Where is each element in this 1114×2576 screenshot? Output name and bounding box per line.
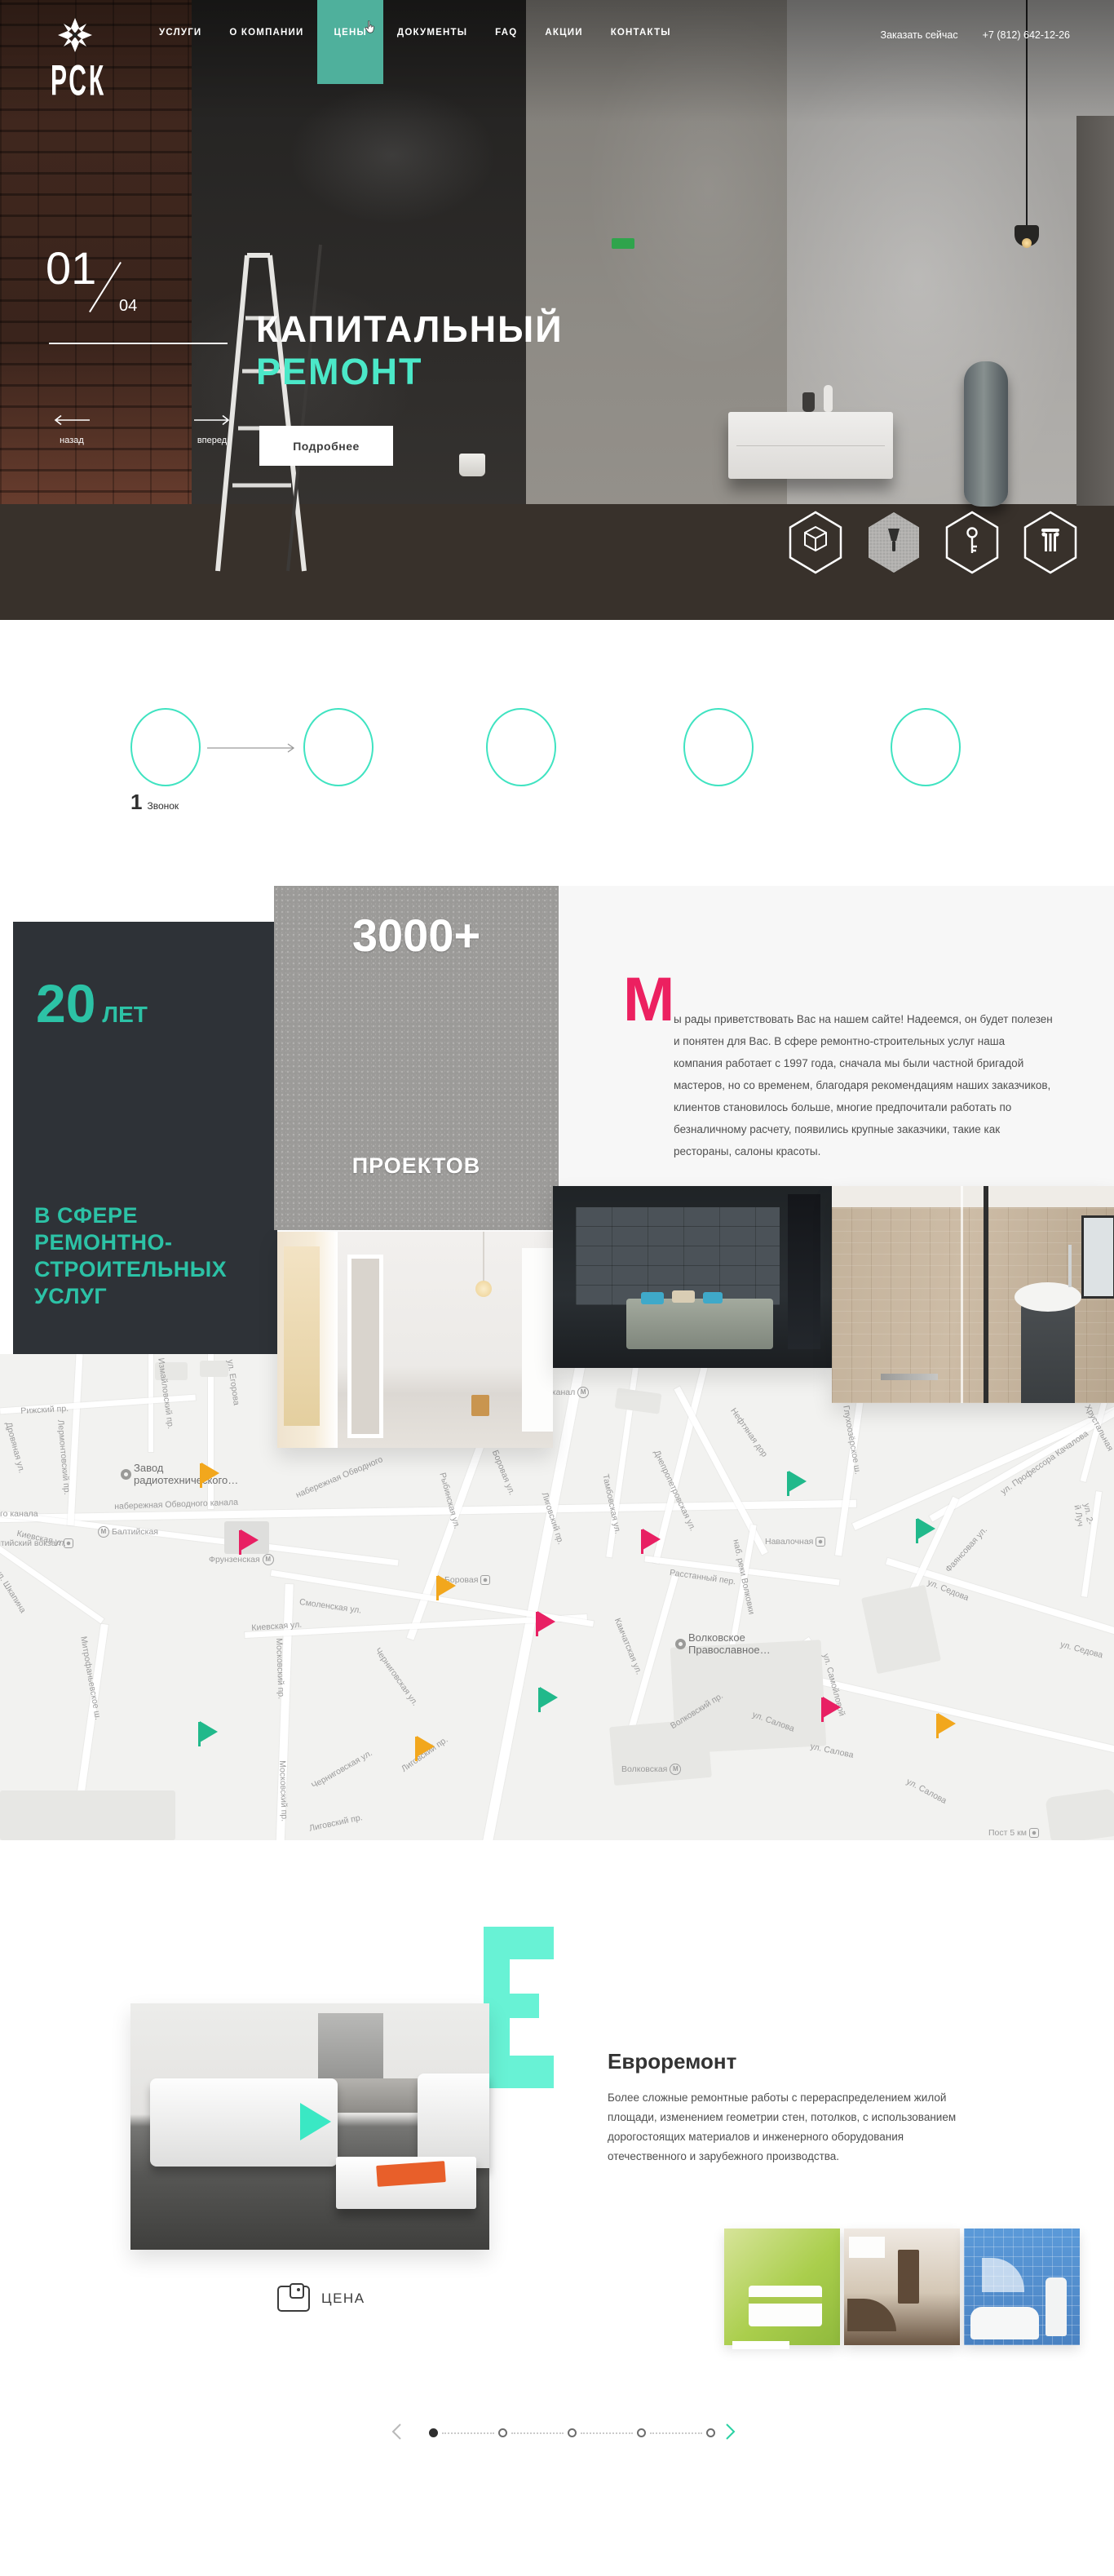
shower-drain [881, 1374, 938, 1380]
pendant-lamp [475, 1281, 492, 1297]
flag-pennant [438, 1575, 456, 1596]
flag-pennant [540, 1687, 558, 1708]
step-number: 1 [130, 790, 142, 815]
flag-pennant [200, 1721, 218, 1742]
pillow-beige [672, 1290, 695, 1303]
wooden-stool [471, 1395, 489, 1416]
map-label-street: Фаянсовая ул. [944, 1525, 989, 1574]
euro-letter [484, 1927, 554, 2088]
map-label-street: ул. Шкапина [0, 1568, 28, 1615]
slide-rule [49, 343, 228, 344]
about-dropcap: М [623, 969, 674, 1031]
map-label-street: Боровая ул. [490, 1449, 517, 1497]
map-label-street: МБалтийская [98, 1526, 158, 1538]
logo[interactable]: РСК [51, 16, 99, 86]
map-label-text: Волковское Православное… [688, 1631, 771, 1656]
map-label-street: ул. Салова [904, 1777, 948, 1806]
price-label: ЦЕНА [321, 2291, 365, 2307]
office-flag-pink[interactable] [821, 1697, 842, 1723]
map-label-text: Днепропетровская ул. [652, 1449, 697, 1533]
cabinet [1076, 116, 1114, 506]
map-label-text: Черниговская ул. [373, 1646, 420, 1708]
pillow-teal-1 [641, 1292, 664, 1304]
right-doorway [522, 1248, 553, 1432]
slide-total: 04 [119, 297, 137, 316]
dot-connector [650, 2432, 702, 2434]
flag-pole [415, 1737, 418, 1761]
metro-icon: М [577, 1387, 589, 1398]
map-label-street: Пост 5 км [988, 1828, 1039, 1838]
map-label-text: Лермонтовский пр. [55, 1419, 72, 1495]
flag-pennant [789, 1471, 807, 1492]
about-paragraph: ы рады приветствовать Вас на нашем сайте… [674, 1008, 1055, 1162]
nav-item-faq[interactable]: FAQ [481, 0, 531, 38]
years-label: ЛЕТ [102, 1002, 147, 1028]
sofa-right [418, 2074, 489, 2168]
map-label-text: Боровая ул. [490, 1449, 517, 1497]
office-flag-teal[interactable] [198, 1721, 219, 1747]
small-vase [802, 392, 815, 412]
map-label-street: Волковское Православное… [675, 1631, 771, 1656]
nav-item-label: ДОКУМЕНТЫ [397, 28, 467, 38]
nav-item-label: FAQ [495, 28, 517, 38]
map-label-text: ул. Салова [810, 1742, 855, 1760]
nav-item-акции[interactable]: АКЦИИ [531, 0, 596, 38]
map-label-text: Камчатская ул. [612, 1617, 644, 1676]
slider-prev-button[interactable]: назад [46, 414, 98, 445]
glass-frame [984, 1186, 988, 1403]
projects-number: 3000+ [274, 909, 559, 962]
map-label-street: Дровяная ул. [3, 1421, 26, 1474]
flag-pole [641, 1529, 643, 1554]
door-opening [347, 1255, 383, 1438]
nav-item-услуги[interactable]: УСЛУГИ [145, 0, 215, 38]
flag-pole [787, 1472, 789, 1496]
map-label-street: Черниговская ул. [373, 1646, 420, 1708]
flag-pennant [643, 1529, 661, 1550]
map-label-text: Навалочная [765, 1537, 813, 1547]
flag-pole [436, 1576, 439, 1600]
hero-title-line2: РЕМОНТ [256, 351, 423, 393]
closet-inner [284, 1246, 320, 1426]
service-hex-cube-icon[interactable] [789, 511, 842, 574]
rail-station-icon [816, 1537, 825, 1547]
map-label-street: Нефтяная дор [728, 1406, 769, 1459]
map-label-text: ул. Егорова [225, 1359, 241, 1406]
map-label-text: ул. Седова [1059, 1640, 1104, 1660]
map-label-text: Московский пр. [277, 1760, 290, 1821]
service-hexagons [789, 511, 1077, 574]
carousel-dots [429, 2428, 715, 2437]
flag-pole [198, 1722, 201, 1746]
map-label-text: го канала [0, 1509, 38, 1519]
nav-item-label: О КОМПАНИИ [229, 28, 303, 38]
step-arrow-icon [207, 742, 297, 757]
dot-connector [442, 2432, 494, 2434]
map-label-street: Днепропетровская ул. [652, 1449, 697, 1533]
hero-slider: РСК УСЛУГИО КОМПАНИИЦЕНЫДОКУМЕНТЫFAQАКЦИ… [0, 0, 1114, 620]
nav-item-документы[interactable]: ДОКУМЕНТЫ [383, 0, 481, 38]
video-preview-photo [130, 2003, 489, 2250]
dot-connector [581, 2432, 633, 2434]
map-label-street: ул. Седова [1059, 1640, 1104, 1660]
map-label-street: ул. 2-й Луч [1072, 1503, 1094, 1529]
map-label-street: ВолковскаяМ [621, 1764, 681, 1775]
bed [626, 1299, 773, 1349]
exit-sign [612, 238, 634, 249]
map-label-text: ул. Шкапина [0, 1568, 28, 1615]
slider-next-button[interactable]: вперед [186, 414, 238, 445]
office-flag-teal[interactable] [538, 1687, 559, 1713]
map-label-street: Московский пр. [274, 1638, 286, 1699]
map-label-text: Черниговская ул. [310, 1748, 374, 1790]
metro-icon: М [670, 1764, 681, 1775]
step-circle-1 [130, 708, 201, 786]
arrow-right-icon [194, 414, 230, 426]
office-flag-yellow[interactable] [415, 1736, 436, 1762]
map-label-street: Лиговский пр. [308, 1812, 364, 1834]
floor-vase [964, 361, 1008, 507]
offices-map[interactable]: Рижский пр.Дровяная ул.Лермонтовский пр.… [0, 1354, 1114, 1840]
pendant-cord [483, 1232, 484, 1282]
step-label-1: 1Звонок [130, 790, 179, 815]
photo-bedroom [553, 1186, 832, 1368]
flag-pennant [201, 1463, 219, 1484]
map-label-street: ул. Егорова [225, 1359, 241, 1406]
step-circle-2 [303, 708, 374, 786]
poi-icon [121, 1469, 131, 1480]
map-label-text: Балтийская [112, 1527, 158, 1537]
office-flag-yellow[interactable] [436, 1575, 458, 1601]
nav-item-цены[interactable]: ЦЕНЫ [317, 0, 382, 84]
metro-icon: М [98, 1526, 109, 1538]
map-label-street: Московский пр. [277, 1760, 290, 1821]
flag-pole [239, 1530, 241, 1555]
nav-item-контакты[interactable]: КОНТАКТЫ [597, 0, 685, 38]
white-vase [824, 385, 833, 412]
flag-pole [538, 1688, 541, 1712]
flag-pole [536, 1612, 538, 1636]
flag-pennant [938, 1713, 956, 1734]
glass-edge [961, 1186, 963, 1403]
map-label-street: набережная Обводного [294, 1454, 384, 1500]
photo-white-interior [277, 1232, 553, 1448]
about-dark-card: 20 ЛЕТ В СФЕРЕ РЕМОНТНО- СТРОИТЕЛЬНЫХ УС… [13, 922, 277, 1365]
logo-text: РСК [51, 58, 99, 107]
snowflake-logo-icon [56, 16, 94, 54]
dot-connector [511, 2432, 564, 2434]
wall-lamp [1015, 225, 1039, 246]
flag-pole [916, 1519, 918, 1543]
projects-label: ПРОЕКТОВ [274, 1153, 559, 1179]
map-label-text: набережная Обводного [294, 1454, 384, 1500]
map-label-street: Черниговская ул. [310, 1748, 374, 1790]
photo-bathroom [832, 1186, 1114, 1403]
office-flag-teal[interactable] [787, 1471, 808, 1497]
flag-pole [821, 1697, 824, 1722]
carousel-dot-1[interactable] [429, 2428, 438, 2437]
details-button[interactable]: Подробнее [259, 426, 393, 466]
flag-pennant [917, 1518, 935, 1539]
carousel-next-button[interactable] [720, 2423, 738, 2441]
bath-ceiling [832, 1186, 1114, 1207]
map-label-text: Волковская [621, 1764, 667, 1774]
map-label-street: Рижский пр. [20, 1404, 69, 1416]
metro-icon: М [263, 1554, 274, 1565]
office-flag-teal[interactable] [916, 1518, 937, 1544]
office-flag-pink[interactable] [239, 1529, 260, 1556]
flag-pennant [241, 1529, 259, 1551]
carousel-dot-5[interactable] [706, 2428, 715, 2437]
nav-item-label: АКЦИИ [545, 28, 582, 38]
map-label-street: ФрунзенскаяМ [209, 1554, 274, 1565]
price-button[interactable]: ЦЕНА [277, 2286, 365, 2312]
paint-bucket [459, 454, 485, 476]
map-label-street: Смоленская ул. [298, 1597, 362, 1616]
next-label: вперед [186, 436, 238, 445]
map-label-text: Рижский пр. [20, 1404, 69, 1416]
flag-pole [936, 1714, 939, 1738]
flag-pennant [417, 1736, 435, 1757]
mirror [1081, 1215, 1114, 1299]
step-circle-3 [486, 708, 556, 786]
nav-item-label: ЦЕНЫ [334, 28, 366, 38]
slide-current: 01 [46, 241, 96, 294]
page: РСК УСЛУГИО КОМПАНИИЦЕНЫДОКУМЕНТЫFAQАКЦИ… [0, 0, 1114, 2576]
rail-station-icon [480, 1575, 490, 1585]
nav-item-label: УСЛУГИ [159, 28, 201, 38]
poi-icon [675, 1639, 686, 1649]
map-label-street: ул. Салова [810, 1742, 855, 1760]
office-flag-pink[interactable] [641, 1529, 662, 1555]
map-label-street: Лермонтовский пр. [55, 1419, 72, 1495]
map-label-street: го канала [0, 1509, 38, 1519]
service-hex-key-icon[interactable] [945, 511, 999, 574]
map-label-text: Фаянсовая ул. [944, 1525, 989, 1574]
prev-label: назад [46, 436, 98, 445]
map-label-text: Пост 5 км [988, 1828, 1027, 1838]
order-now-link[interactable]: Заказать сейчас [881, 29, 958, 41]
step-text: Звонок [147, 800, 179, 812]
nav-item-о компании[interactable]: О КОМПАНИИ [215, 0, 317, 38]
euro-heading: Евроремонт [608, 2049, 736, 2074]
carousel-dot-2[interactable] [498, 2428, 507, 2437]
service-hex-column-icon[interactable] [1023, 511, 1077, 574]
dresser [728, 412, 893, 479]
carousel-dot-3[interactable] [568, 2428, 577, 2437]
step-circle-5 [891, 708, 961, 786]
nav-item-label: КОНТАКТЫ [611, 28, 671, 38]
office-flag-yellow[interactable] [200, 1463, 221, 1489]
pillow-teal-2 [703, 1292, 723, 1303]
flag-pennant [537, 1611, 555, 1632]
arrow-left-icon [54, 414, 90, 426]
map-label-street: Навалочная [765, 1537, 825, 1547]
hero-title-line1: КАПИТАЛЬНЫЙ [256, 308, 564, 351]
flag-pennant [823, 1697, 841, 1718]
sphere-text: В СФЕРЕ РЕМОНТНО- СТРОИТЕЛЬНЫХ УСЛУГ [34, 1202, 227, 1310]
office-flag-pink[interactable] [536, 1611, 557, 1637]
carousel-dot-4[interactable] [637, 2428, 646, 2437]
window [788, 1194, 820, 1349]
thumb-beige-kitchen[interactable] [844, 2229, 960, 2345]
map-label-text: Московский пр. [274, 1638, 286, 1699]
header-contacts: Заказать сейчас +7 (812) 642-12-26 [881, 29, 1070, 41]
faucet [1068, 1245, 1072, 1287]
map-label-street: Камчатская ул. [612, 1617, 644, 1676]
steps-section: 1Звонок [130, 708, 984, 822]
gallery-thumbs [724, 2229, 1080, 2345]
office-flag-yellow[interactable] [936, 1713, 957, 1739]
map-label-text: ул. 2-й Луч [1072, 1503, 1094, 1529]
wallet-icon [277, 2286, 310, 2312]
ladder [183, 241, 334, 575]
phone-number[interactable]: +7 (812) 642-12-26 [983, 29, 1070, 41]
projects-card: 3000+ ПРОЕКТОВ [274, 886, 559, 1230]
map-label-text: Завод радиотехнического… [134, 1462, 238, 1486]
map-label-text: набережная Обводного канала [114, 1498, 238, 1512]
flag-pole [200, 1463, 202, 1488]
thumb-green-bedroom[interactable] [724, 2229, 840, 2345]
map-label-text: Нефтяная дор [728, 1406, 769, 1459]
map-label-text: ул. Салова [904, 1777, 948, 1806]
map-label-text: Фрунзенская [209, 1555, 260, 1565]
step-circle-4 [683, 708, 754, 786]
map-label-text: Смоленская ул. [298, 1597, 362, 1616]
play-button[interactable] [300, 2103, 331, 2140]
thumb-blue-bathroom[interactable] [964, 2229, 1080, 2345]
map-label-text: Лиговский пр. [308, 1812, 364, 1834]
main-nav: УСЛУГИО КОМПАНИИЦЕНЫДОКУМЕНТЫFAQАКЦИИКОН… [145, 0, 685, 84]
map-label-text: Дровяная ул. [3, 1421, 26, 1474]
rail-station-icon [1029, 1828, 1039, 1838]
service-hex-trowel-icon[interactable] [867, 511, 921, 574]
map-label-street: набережная Обводного канала [114, 1498, 238, 1512]
years-number: 20 [36, 972, 95, 1034]
basin-pedestal [1021, 1300, 1075, 1403]
euro-paragraph: Более сложные ремонтные работы с перерас… [608, 2088, 976, 2167]
carousel-prev-button[interactable] [389, 2423, 407, 2441]
